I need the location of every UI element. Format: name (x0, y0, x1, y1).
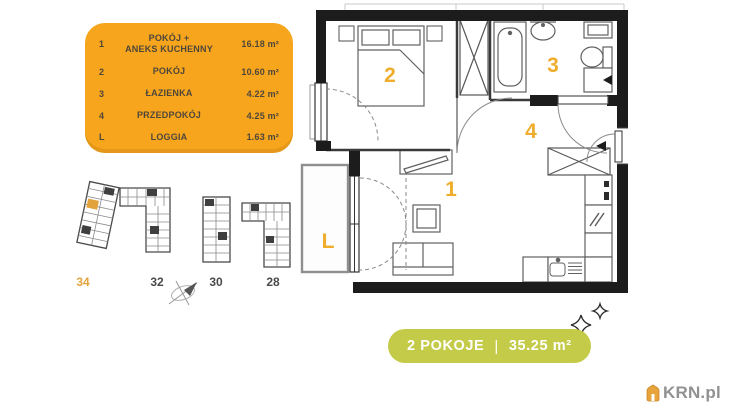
table (413, 205, 440, 232)
tv-cabinet (400, 150, 452, 174)
house-icon (645, 384, 661, 402)
summary-badge: 2 POKOJE | 35.25 m² (388, 329, 591, 363)
structure-outline (345, 4, 624, 10)
room-label-loggia: L (322, 230, 335, 253)
room-label-3: 3 (547, 54, 559, 77)
building-28 (242, 203, 290, 267)
badge-rooms: 2 POKOJE (407, 338, 484, 354)
building-32 (120, 188, 170, 252)
compass-icon (169, 281, 197, 305)
washing-machine (584, 68, 612, 92)
floorplan-page: 1 POKÓJ + ANEKS KUCHENNY 16.18 m² 2 POKÓ… (0, 0, 740, 415)
bathtub (494, 22, 526, 92)
wardrobe (548, 148, 610, 175)
kitchen-cabinet (585, 233, 612, 257)
building-label-30: 30 (209, 275, 223, 289)
building-34 (77, 182, 119, 249)
watermark: KRN.pl (645, 383, 721, 403)
badge-area: 35.25 m² (509, 338, 572, 354)
sofa (393, 243, 453, 275)
room-label-2: 2 (384, 64, 396, 87)
fridge (585, 175, 612, 205)
room-label-1: 1 (445, 178, 457, 201)
cabinet (584, 22, 612, 38)
wardrobe (460, 20, 488, 95)
loggia (302, 165, 348, 272)
siteplan: 34 32 30 28 (76, 182, 290, 305)
stove (585, 205, 612, 233)
room-label-4: 4 (525, 120, 537, 143)
room-door (457, 98, 512, 153)
kitchen-counter (523, 257, 612, 282)
badge-divider: | (494, 338, 499, 355)
toilet (581, 47, 612, 68)
building-30 (203, 197, 230, 262)
apartment-floorplan: 2 3 4 1 L (0, 0, 740, 415)
building-label-34: 34 (76, 275, 90, 289)
sink (530, 22, 556, 40)
building-label-32: 32 (150, 275, 164, 289)
watermark-text: KRN.pl (663, 383, 721, 403)
building-label-28: 28 (266, 275, 280, 289)
